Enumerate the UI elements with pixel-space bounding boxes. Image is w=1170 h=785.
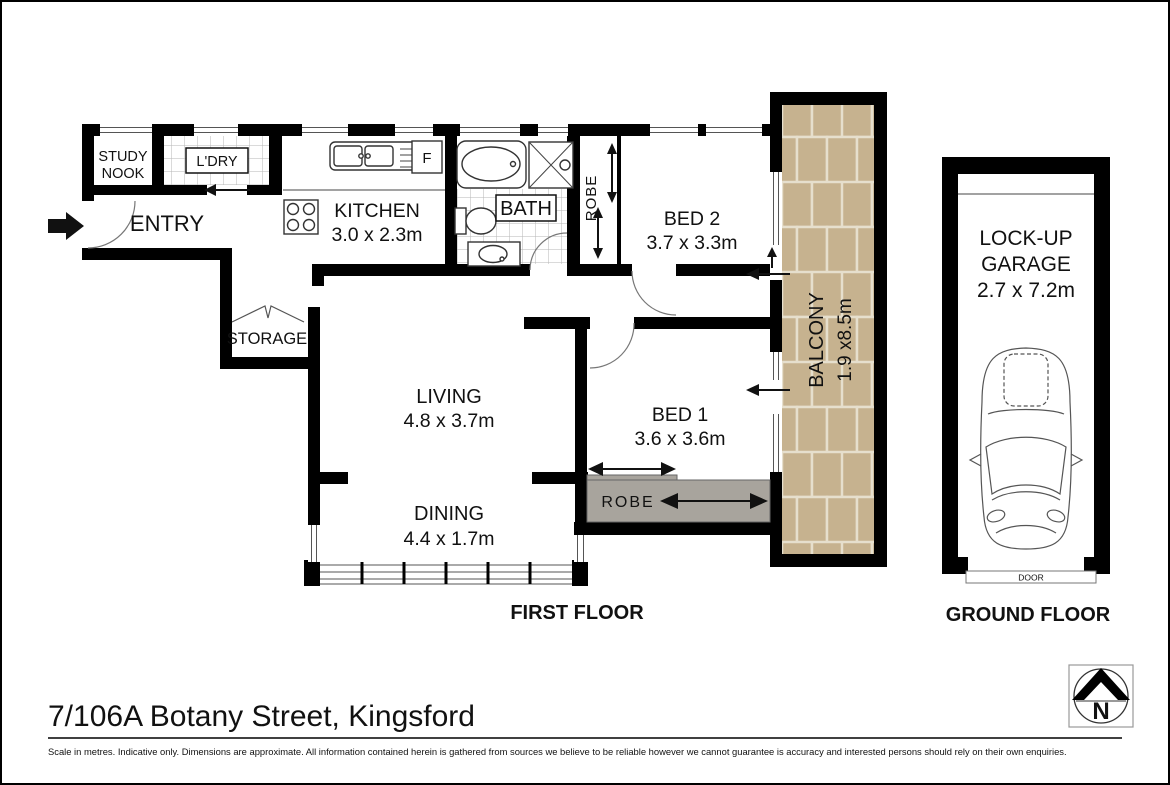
balcony-tiles: [782, 92, 875, 567]
garage-door: DOOR: [966, 571, 1096, 583]
bathtub-icon: [457, 141, 526, 188]
dining-dims: 4.4 x 1.7m: [403, 528, 494, 550]
entry-door-arc: [88, 201, 135, 248]
living-dims: 4.8 x 3.7m: [403, 410, 494, 432]
vanity-icon: [468, 242, 520, 266]
garage-label-1: LOCK-UP: [979, 227, 1072, 250]
address-title: 7/106A Botany Street, Kingsford: [48, 700, 475, 733]
bed1-label: BED 1: [652, 404, 708, 426]
cooktop-icon: [284, 200, 318, 234]
north-compass-icon: N: [1069, 665, 1133, 727]
garage-dims: 2.7 x 7.2m: [977, 279, 1075, 302]
shower-icon: [529, 142, 573, 188]
ground-floor-caption: GROUND FLOOR: [946, 604, 1111, 626]
study-nook-label-2: NOOK: [102, 166, 145, 182]
garage-walls: [942, 157, 1110, 574]
disclaimer-text: Scale in metres. Indicative only. Dimens…: [48, 746, 1067, 757]
fridge-icon: F: [412, 141, 442, 173]
toilet-icon: [455, 208, 496, 234]
balcony-label: BALCONY: [806, 292, 828, 388]
storage-label: STORAGE: [227, 330, 307, 348]
entry-arrow-icon: [48, 212, 84, 240]
bed1-robe-slider-arrow: [588, 462, 676, 476]
hall-robe-label: ROBE: [583, 175, 600, 222]
laundry-label: L'DRY: [196, 154, 238, 170]
laundry-arrow-icon: [204, 184, 250, 196]
garage-label-2: GARAGE: [981, 253, 1071, 276]
ground-floor-plan: DOOR LOCK-UP GARAGE 2.7 x 7.2m GROUND FL…: [942, 157, 1111, 626]
compass-north-label: N: [1092, 698, 1109, 725]
first-floor-plan: F: [48, 92, 887, 624]
first-floor-caption: FIRST FLOOR: [510, 602, 644, 624]
living-label: LIVING: [416, 386, 482, 408]
bed1-dims: 3.6 x 3.6m: [634, 428, 725, 450]
fridge-label: F: [422, 150, 431, 167]
garage-labels: LOCK-UP GARAGE 2.7 x 7.2m: [977, 227, 1075, 302]
floorplan-page: F: [0, 0, 1170, 785]
bed2-dims: 3.7 x 3.3m: [646, 232, 737, 254]
car-icon: [970, 348, 1082, 549]
floorplan-svg: F: [2, 2, 1168, 783]
top-wall-windows: [100, 124, 762, 136]
bed2-door-arc: [632, 271, 676, 315]
kitchen-label: KITCHEN: [334, 200, 420, 222]
balcony-dims: 1.9 x8.5m: [835, 298, 856, 381]
entry-label: ENTRY: [130, 211, 204, 236]
bed1-robe-label: ROBE: [601, 494, 654, 511]
study-nook-label-1: STUDY: [98, 149, 147, 165]
garage-door-label: DOOR: [1018, 573, 1044, 583]
footer: 7/106A Botany Street, Kingsford Scale in…: [48, 700, 1122, 757]
dining-label: DINING: [414, 503, 484, 525]
storage-bifold-door: [232, 306, 304, 322]
kitchen-dims: 3.0 x 2.3m: [331, 224, 422, 246]
bath-label: BATH: [500, 198, 552, 220]
bed1-door-arc: [590, 323, 634, 368]
bed2-label: BED 2: [664, 208, 720, 230]
